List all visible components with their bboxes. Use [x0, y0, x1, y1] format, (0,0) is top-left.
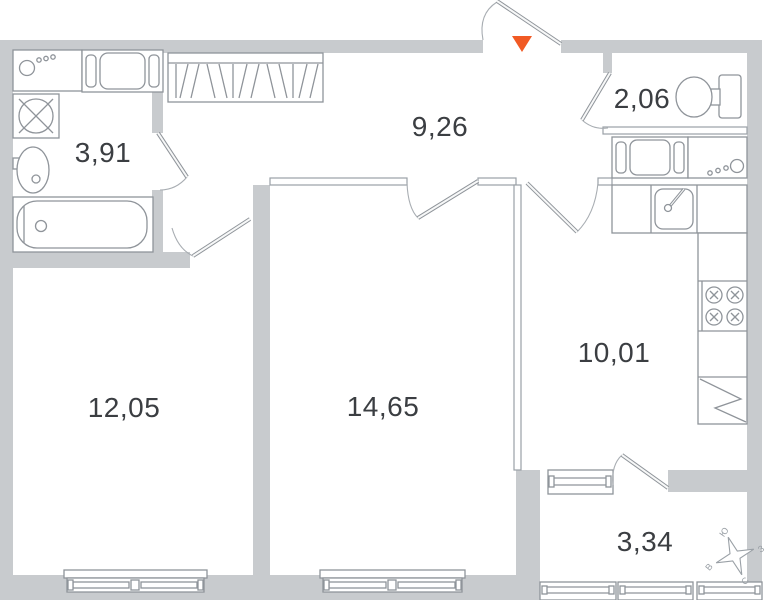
wall-wc-stub [603, 53, 612, 73]
wardrobe-icon [168, 53, 323, 102]
room-label-balcony: 3,34 [617, 526, 674, 557]
room-label-room1: 12,05 [88, 392, 161, 423]
bathroom-door [158, 133, 187, 190]
wall-rooms-divider [253, 185, 270, 575]
bath-cabinet-icon [82, 50, 163, 92]
wall-right [747, 40, 762, 600]
water-heater-icon [13, 94, 59, 138]
room2-door [407, 181, 478, 218]
partition-kitchen-left [514, 185, 521, 470]
room-label-bathroom: 3,91 [75, 137, 132, 168]
wall-balcony-top [668, 470, 747, 492]
floor-plan: Ю З С В 3,91 9,26 2,06 12,05 14,65 10,01… [0, 0, 769, 600]
bath-sink-icon [13, 147, 49, 193]
balcony-door [613, 455, 668, 488]
partition-kitchen-top [598, 178, 612, 185]
kitchen-sink-icon [655, 189, 693, 229]
window-balcony-door-block [548, 470, 613, 494]
wall-below-bath [0, 252, 190, 268]
kitchen-cabinet-icon [612, 137, 688, 178]
toilet-icon [676, 75, 741, 118]
window-room1 [64, 570, 207, 592]
entrance-marker-icon [512, 36, 532, 52]
compass-south: Ю [717, 525, 730, 538]
compass-east: В [703, 561, 715, 572]
floor-plan-canvas: Ю З С В 3,91 9,26 2,06 12,05 14,65 10,01… [0, 0, 769, 600]
window-room2 [320, 570, 465, 592]
wall-balcony-left [516, 470, 540, 600]
bathtub-icon [13, 197, 153, 252]
room-label-kitchen: 10,01 [578, 337, 651, 368]
room-label-wc: 2,06 [614, 83, 671, 114]
wall-top-right [561, 40, 762, 53]
room-label-hallway: 9,26 [412, 111, 469, 142]
wc-door [582, 73, 610, 128]
room1-door [172, 219, 250, 256]
partition-room2-top-left [270, 178, 407, 185]
kitchen-counter-knobs [688, 137, 747, 178]
balcony-windows [540, 582, 762, 600]
washing-machine-icon [13, 50, 82, 91]
wall-left [0, 40, 13, 600]
partition-wc-bottom [603, 127, 747, 134]
kitchen-door [527, 183, 598, 232]
partition-room2-top-right [478, 178, 516, 185]
kitchen-counter-strip [698, 233, 747, 424]
outer-walls [0, 40, 762, 600]
room-label-room2: 14,65 [347, 391, 420, 422]
